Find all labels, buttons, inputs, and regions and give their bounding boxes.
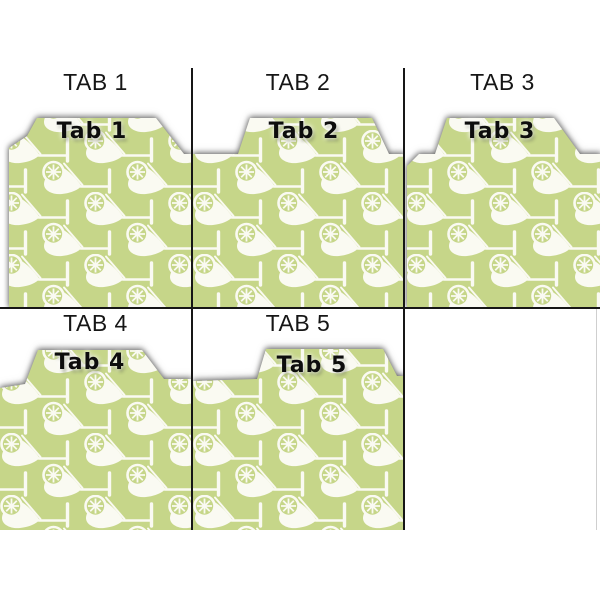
folder-image-tab5 xyxy=(193,309,403,530)
folder-image-tab3 xyxy=(405,68,600,308)
preview-cell-empty xyxy=(405,309,600,530)
preview-cell-tab1[interactable]: TAB 1 Tab 1 xyxy=(0,68,191,308)
file-folder-tab-previews: TAB 1 Tab 1 TAB 2 Tab 2 TAB 3 Tab 3 TAB … xyxy=(0,0,600,600)
folder-image-tab2 xyxy=(193,68,403,308)
preview-cell-tab4[interactable]: TAB 4 Tab 4 xyxy=(0,309,191,530)
preview-cell-tab3[interactable]: TAB 3 Tab 3 xyxy=(405,68,600,308)
folder-tab-label: Tab 3 xyxy=(465,118,536,146)
folder-tab-label: Tab 5 xyxy=(277,353,348,379)
folder-tab-label: Tab 2 xyxy=(269,118,340,146)
grid-line-vertical-2 xyxy=(403,68,405,530)
grid-line-horizontal xyxy=(0,307,600,309)
folder-image-tab4 xyxy=(0,309,191,530)
preview-cell-tab5[interactable]: TAB 5 Tab 5 xyxy=(193,309,403,530)
preview-cell-tab2[interactable]: TAB 2 Tab 2 xyxy=(193,68,403,308)
grid-line-vertical-faint xyxy=(596,309,597,530)
folder-tab-label: Tab 1 xyxy=(57,118,128,146)
folder-image-tab1 xyxy=(0,68,191,308)
grid-line-vertical-1 xyxy=(191,68,193,530)
folder-tab-label: Tab 4 xyxy=(55,350,126,376)
